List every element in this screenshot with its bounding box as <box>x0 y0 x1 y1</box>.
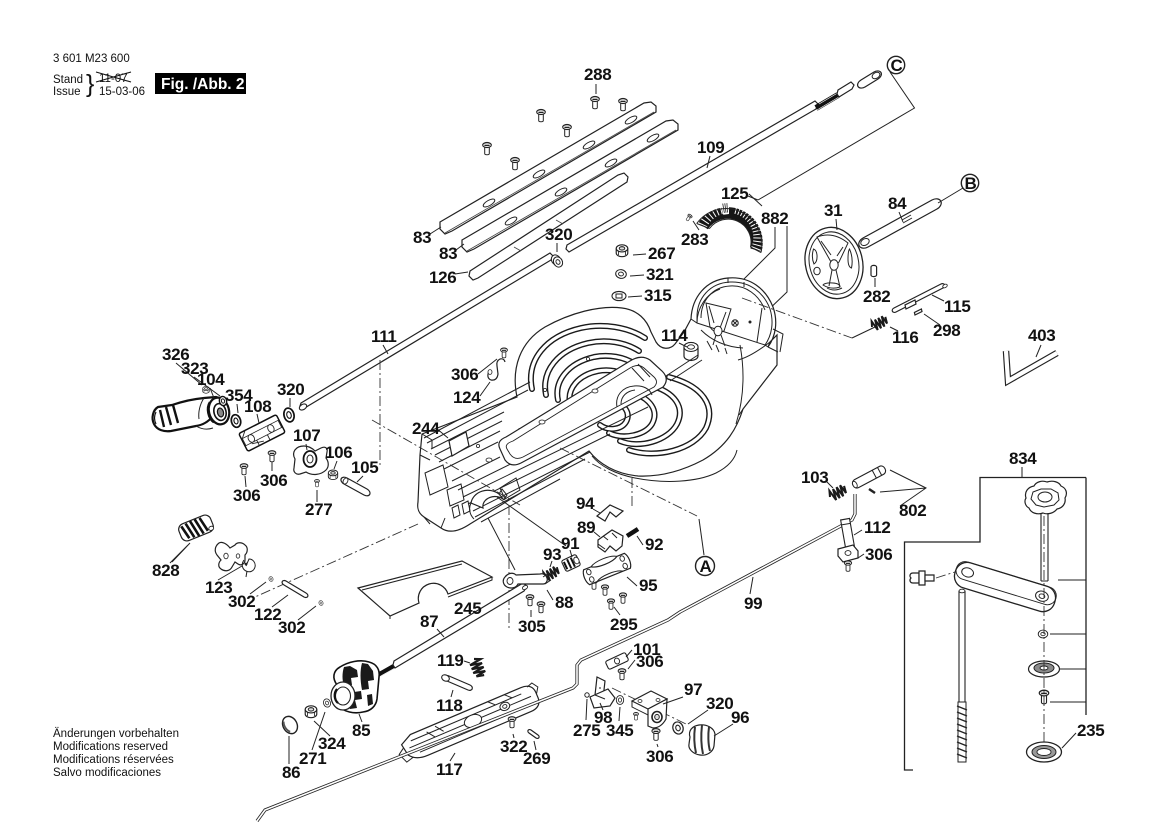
svg-text:83: 83 <box>439 244 457 263</box>
svg-text:305: 305 <box>518 617 545 636</box>
svg-text:283: 283 <box>681 230 708 249</box>
svg-text:99: 99 <box>744 594 762 613</box>
svg-text:94: 94 <box>576 494 595 513</box>
svg-text:244: 244 <box>412 419 440 438</box>
svg-text:11-07: 11-07 <box>99 73 128 85</box>
svg-text:105: 105 <box>351 458 378 477</box>
svg-text:288: 288 <box>584 65 611 84</box>
svg-text:83: 83 <box>413 228 431 247</box>
svg-text:108: 108 <box>244 397 271 416</box>
svg-text:295: 295 <box>610 615 637 634</box>
svg-text:321: 321 <box>646 265 673 284</box>
svg-text:107: 107 <box>293 426 320 445</box>
svg-text:114: 114 <box>661 326 688 345</box>
svg-text:125: 125 <box>721 184 748 203</box>
svg-text:B: B <box>965 174 977 193</box>
svg-text:118: 118 <box>436 696 463 715</box>
svg-text:124: 124 <box>453 388 481 407</box>
svg-text:320: 320 <box>706 694 733 713</box>
svg-text:Modifications réservées: Modifications réservées <box>53 754 174 766</box>
svg-text:403: 403 <box>1028 326 1055 345</box>
svg-text:92: 92 <box>645 535 663 554</box>
svg-text:306: 306 <box>865 545 892 564</box>
svg-text:Stand: Stand <box>53 74 83 86</box>
svg-text:91: 91 <box>561 534 579 553</box>
svg-text:97: 97 <box>684 680 702 699</box>
svg-text:88: 88 <box>555 593 573 612</box>
svg-text:87: 87 <box>420 612 438 631</box>
svg-text:95: 95 <box>639 576 657 595</box>
svg-text:86: 86 <box>282 763 300 782</box>
svg-text:15-03-06: 15-03-06 <box>99 86 145 98</box>
svg-text:89: 89 <box>577 518 595 537</box>
svg-text:306: 306 <box>451 365 478 384</box>
svg-text:275: 275 <box>573 721 600 740</box>
svg-text:235: 235 <box>1077 721 1104 740</box>
svg-text:269: 269 <box>523 749 550 768</box>
svg-text:Modifications reserved: Modifications reserved <box>53 741 168 753</box>
svg-text:298: 298 <box>933 321 960 340</box>
svg-text:Issue: Issue <box>53 86 81 98</box>
svg-text:126: 126 <box>429 268 456 287</box>
svg-text:93: 93 <box>543 545 561 564</box>
svg-text:Fig. /Abb. 2: Fig. /Abb. 2 <box>161 76 245 93</box>
svg-text:828: 828 <box>152 561 179 580</box>
svg-text:115: 115 <box>944 297 971 316</box>
svg-text:Änderungen vorbehalten: Änderungen vorbehalten <box>53 728 179 740</box>
svg-text:306: 306 <box>233 486 260 505</box>
svg-text:267: 267 <box>648 244 675 263</box>
svg-text:277: 277 <box>305 500 332 519</box>
svg-text:84: 84 <box>888 194 907 213</box>
svg-text:245: 245 <box>454 599 481 618</box>
svg-text:}: } <box>86 70 94 98</box>
svg-text:271: 271 <box>299 749 326 768</box>
svg-text:116: 116 <box>892 328 919 347</box>
svg-text:103: 103 <box>801 468 828 487</box>
svg-text:85: 85 <box>352 721 370 740</box>
svg-text:302: 302 <box>278 618 305 637</box>
svg-text:306: 306 <box>260 471 287 490</box>
svg-text:306: 306 <box>636 652 663 671</box>
svg-text:96: 96 <box>731 708 749 727</box>
svg-text:31: 31 <box>824 201 842 220</box>
svg-text:320: 320 <box>277 380 304 399</box>
svg-text:3 601 M23 600: 3 601 M23 600 <box>53 53 130 65</box>
svg-text:109: 109 <box>697 138 724 157</box>
svg-text:302: 302 <box>228 592 255 611</box>
svg-text:117: 117 <box>436 760 463 779</box>
svg-text:315: 315 <box>644 286 671 305</box>
svg-text:C: C <box>891 56 903 75</box>
svg-text:112: 112 <box>864 518 891 537</box>
svg-text:Salvo modificaciones: Salvo modificaciones <box>53 767 161 779</box>
svg-text:306: 306 <box>646 747 673 766</box>
svg-text:119: 119 <box>437 651 464 670</box>
svg-text:111: 111 <box>371 327 397 346</box>
svg-text:345: 345 <box>606 721 633 740</box>
svg-text:A: A <box>700 557 712 576</box>
svg-text:104: 104 <box>197 370 225 389</box>
svg-text:802: 802 <box>899 501 926 520</box>
svg-text:320: 320 <box>545 225 572 244</box>
svg-text:106: 106 <box>325 443 352 462</box>
svg-text:882: 882 <box>761 209 788 228</box>
svg-text:834: 834 <box>1009 449 1037 468</box>
svg-text:282: 282 <box>863 287 890 306</box>
